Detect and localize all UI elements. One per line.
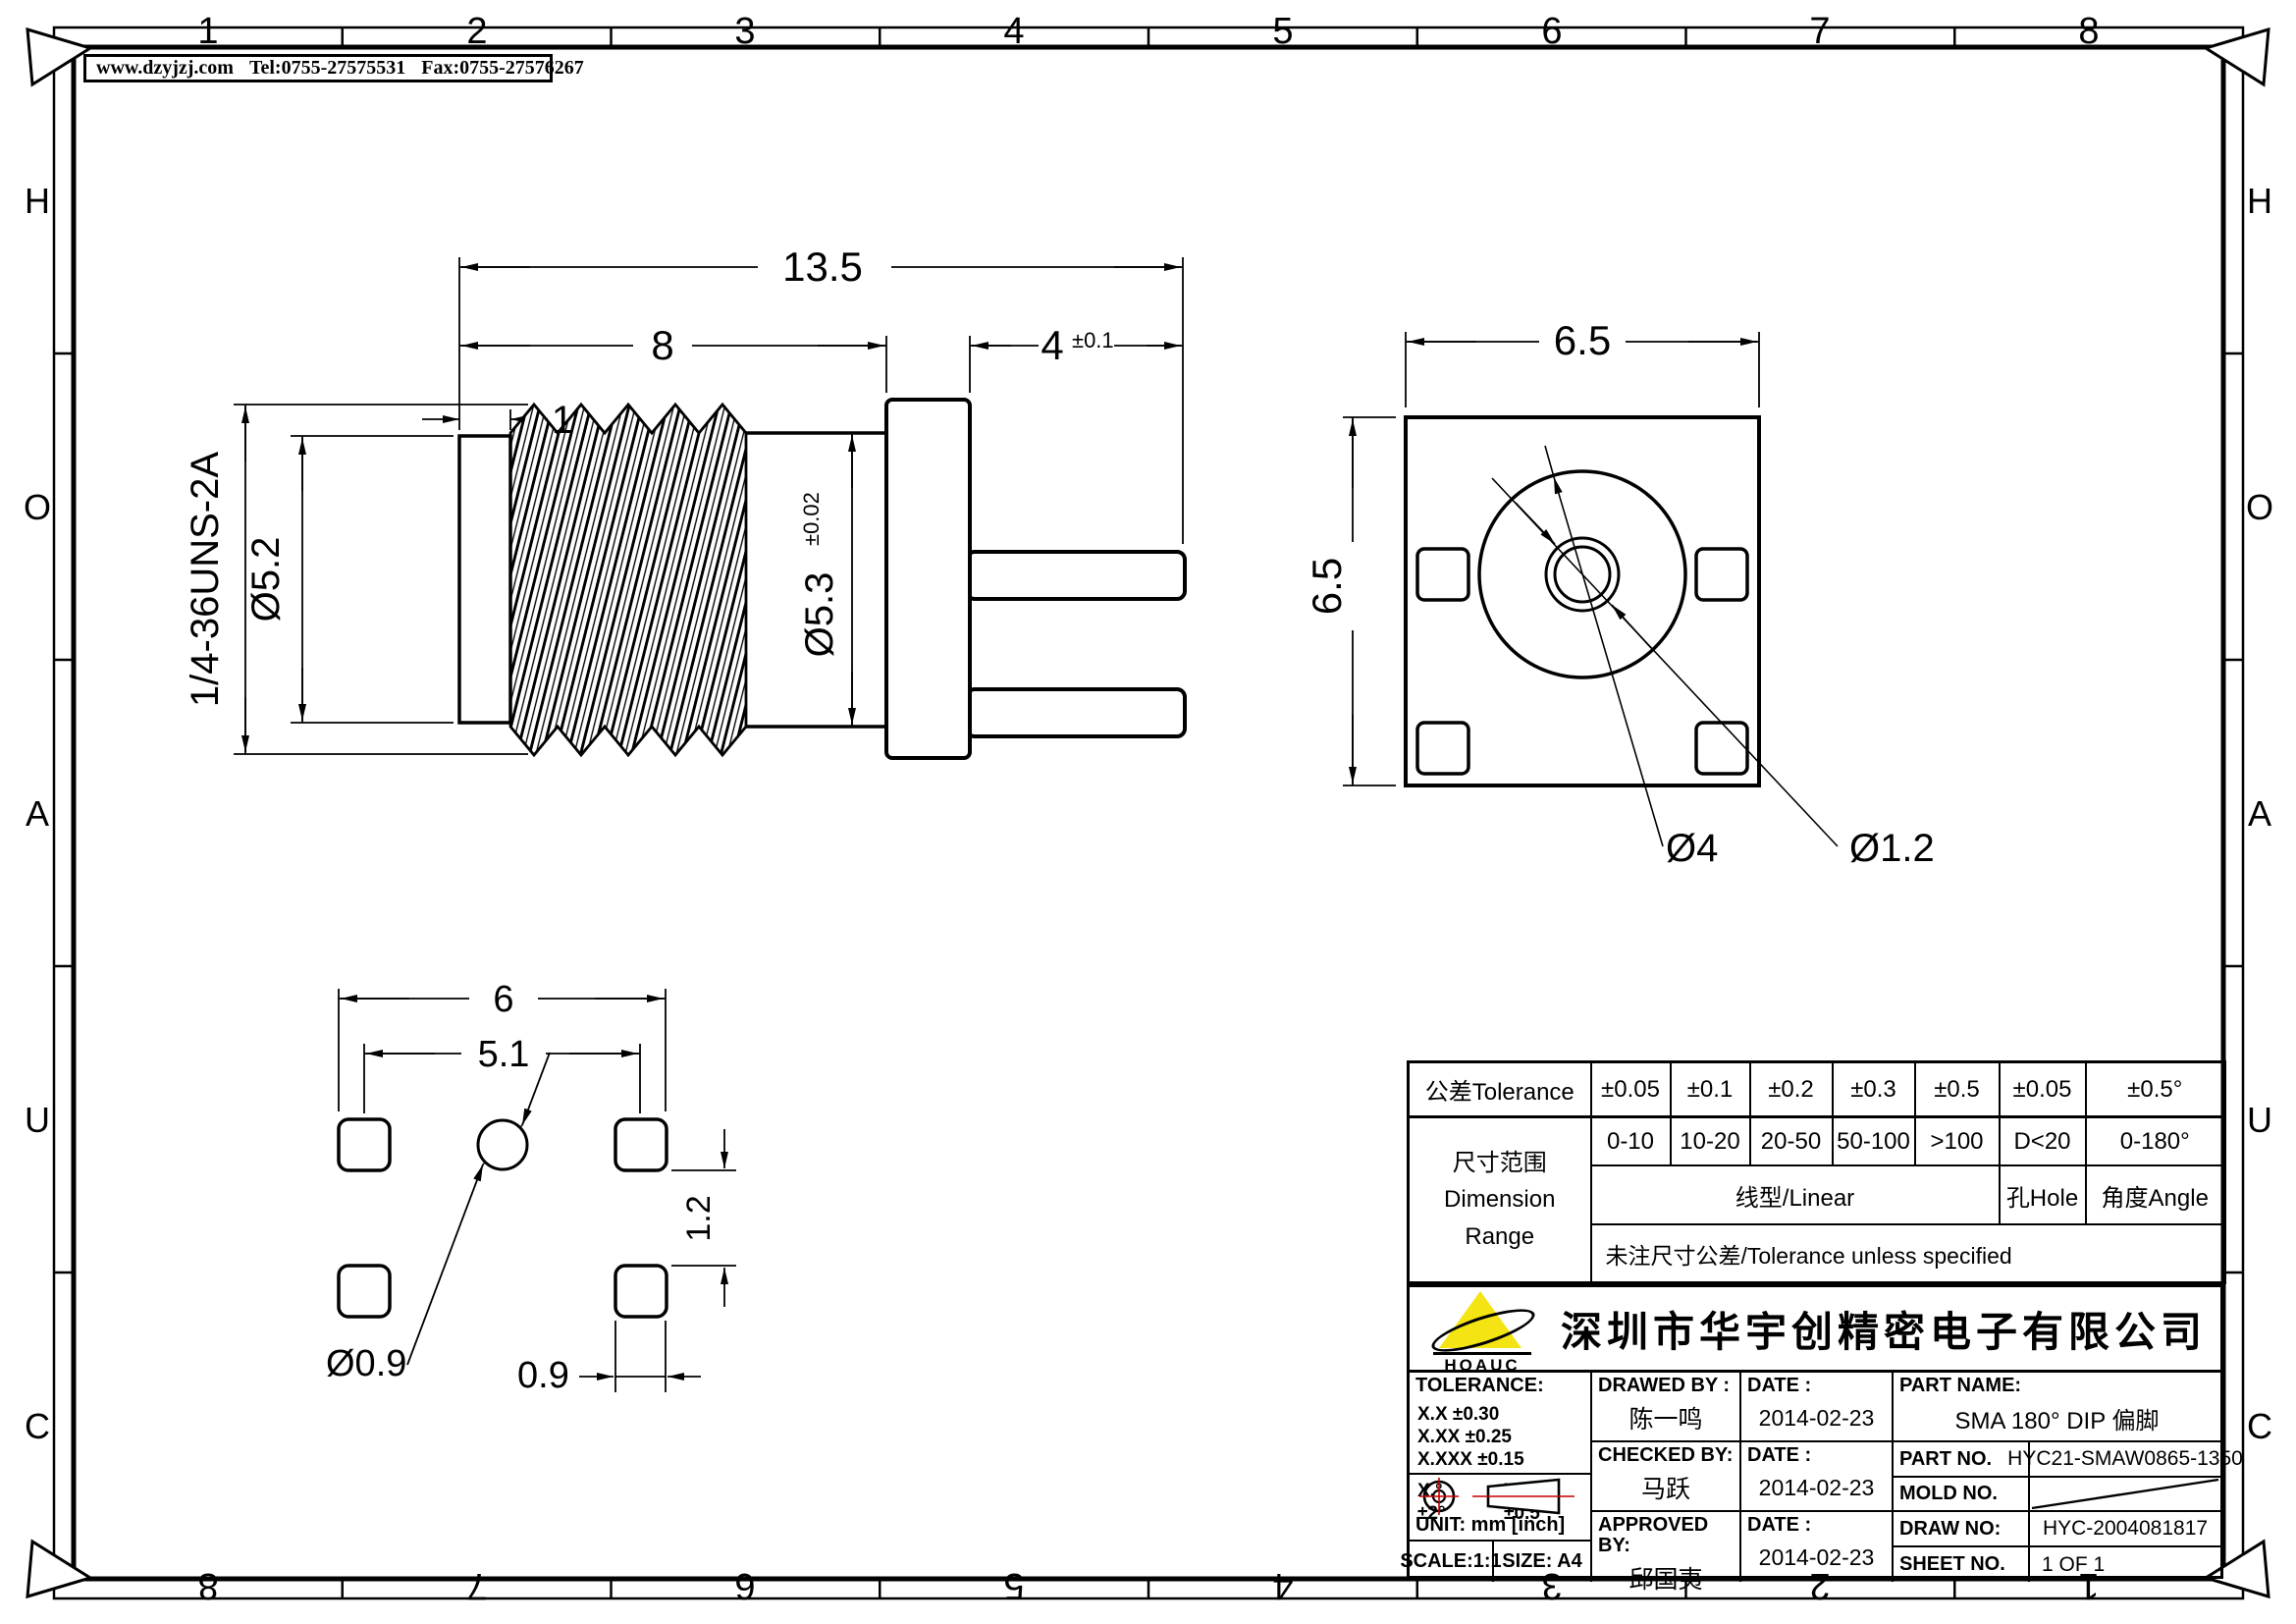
approved-by-label: APPROVED BY:	[1592, 1512, 1739, 1559]
range-value-cell: 20-50	[1750, 1117, 1833, 1166]
tolerance-value-cell: ±0.3	[1833, 1062, 1915, 1117]
range-value-cell: D<20	[2000, 1117, 2086, 1166]
dimension-range-cell: 尺寸范围 Dimension Range	[1409, 1117, 1591, 1283]
date-label: DATE :	[1741, 1373, 1892, 1399]
tolerance-note-block: TOLERANCE: X.X ±0.30 X.XX ±0.25 X.XXX ±0…	[1410, 1373, 1592, 1473]
checked-by-name: 马跃	[1592, 1469, 1739, 1506]
date-label: DATE :	[1741, 1442, 1892, 1469]
tolerance-table: 公差Tolerance ±0.05 ±0.1 ±0.2 ±0.3 ±0.5 ±0…	[1407, 1060, 2223, 1284]
dim-pad-span: 6	[493, 979, 513, 1020]
zone-row-label: A	[26, 793, 49, 834]
zone-row-label: O	[24, 487, 51, 527]
dim-hole-diameter: Ø0.9	[326, 1343, 406, 1384]
range-value-cell: 50-100	[1833, 1117, 1915, 1166]
zone-row-label: O	[2246, 487, 2273, 527]
telephone-text: Tel:0755-27575531	[249, 57, 405, 80]
zone-row-label: C	[25, 1406, 50, 1446]
tolerance-value-cell: ±0.2	[1750, 1062, 1833, 1117]
part-name-label: PART NAME:	[1894, 1373, 2220, 1399]
zone-col-label: 7	[466, 1565, 487, 1606]
dim-pad-pitch: 5.1	[478, 1034, 530, 1075]
pad-bottom-left	[1417, 723, 1468, 774]
side-view: 13.5 8 4 ±0.1 1 1/4-36UNS-2A Ø5.2 Ø5.3 ±…	[184, 244, 1185, 758]
company-row: HOAUC 深圳市华宇创精密电子有限公司	[1410, 1287, 2220, 1373]
zone-col-label: 5	[1003, 1565, 1024, 1606]
dim-pin-diameter: Ø1.2	[1849, 827, 1935, 870]
scale-cell: SCALE:1:1	[1410, 1540, 1494, 1582]
dim-pad-size: 0.9	[517, 1355, 569, 1396]
dim-flange-height: 6.5	[1304, 558, 1350, 615]
zone-col-label: 4	[1272, 1565, 1293, 1606]
blank-diagonal	[2030, 1478, 2220, 1510]
front-view: 6.5 6.5 Ø4 Ø1.2	[1304, 317, 1935, 870]
mount-flange	[886, 400, 970, 758]
zone-col-label: 6	[1541, 11, 1562, 52]
checked-by-cell: CHECKED BY: 马跃	[1592, 1442, 1741, 1512]
tolerance-value-cell: ±0.5°	[2086, 1062, 2225, 1117]
draw-no-value: HYC-2004081817	[2030, 1512, 2220, 1547]
range-value-cell: 10-20	[1671, 1117, 1750, 1166]
fax-text: Fax:0755-27576267	[421, 57, 584, 80]
dim-total-length: 13.5	[782, 244, 863, 290]
projection-symbol	[1412, 1477, 1590, 1516]
pad-bottom-right	[1696, 723, 1747, 774]
zone-col-label: 5	[1272, 11, 1293, 52]
zone-col-label: 2	[466, 11, 487, 52]
checked-by-label: CHECKED BY:	[1592, 1442, 1739, 1469]
date-cell: DATE : 2014-02-23	[1741, 1442, 1894, 1512]
zone-col-label: 1	[197, 11, 218, 52]
tolerance-header-cell: 公差Tolerance	[1409, 1062, 1591, 1117]
dim-thread-spec: 1/4-36UNS-2A	[184, 452, 227, 707]
sheet-no-label: SHEET NO.	[1894, 1547, 2030, 1582]
dim-row-offset: 1.2	[680, 1195, 718, 1241]
zone-col-label: 7	[1809, 11, 1830, 52]
drawed-by-cell: DRAWED BY : 陈一鸣	[1592, 1373, 1741, 1442]
footprint-view: 6 5.1 1.2 Ø0.9 0.9	[326, 979, 736, 1396]
pad-mid-left	[1417, 549, 1468, 600]
dim-flange-circle-diameter: Ø4	[1666, 827, 1718, 870]
dimension-lines	[339, 999, 724, 1377]
logo-underline	[1433, 1352, 1531, 1355]
pad-bottom-right	[615, 1266, 667, 1317]
ground-leg	[967, 689, 1185, 736]
part-no-value: HYC21-SMAW0865-1350	[2030, 1442, 2220, 1478]
zone-col-label: 4	[1003, 11, 1024, 52]
company-name: 深圳市华宇创精密电子有限公司	[1547, 1287, 2220, 1370]
tolerance-line: X.X ±0.30	[1417, 1403, 1582, 1426]
center-hole	[478, 1120, 527, 1169]
date-label: DATE :	[1741, 1512, 1892, 1539]
zone-col-label: 3	[734, 11, 755, 52]
zone-row-label: H	[2247, 181, 2272, 221]
range-label-en1: Dimension	[1410, 1181, 1590, 1218]
dim-thread-length: 8	[651, 322, 673, 368]
angle-label-cell: 角度Angle	[2086, 1165, 2225, 1224]
dim-barrel-tolerance: ±0.02	[799, 492, 824, 546]
size-cell: SIZE: A4	[1494, 1540, 1592, 1582]
thread-section	[510, 405, 746, 755]
part-name-cell: PART NAME: SMA 180° DIP 偏脚	[1894, 1373, 2220, 1442]
pad-top-right	[615, 1119, 667, 1170]
approved-by-cell: APPROVED BY: 邱国夷	[1592, 1512, 1741, 1582]
tolerance-value-cell: ±0.5	[1915, 1062, 2000, 1117]
projection-unit-block: UNIT: mm [inch]	[1410, 1473, 1592, 1540]
range-value-cell: 0-180°	[2086, 1117, 2225, 1166]
zone-row-label: U	[2247, 1100, 2272, 1140]
range-value-cell: 0-10	[1591, 1117, 1671, 1166]
drawing-sheet: 1 2 3 4 5 6 7 8 8 7 6 5 4 3 2 1 H O A U …	[0, 0, 2296, 1624]
drawed-by-label: DRAWED BY :	[1592, 1373, 1739, 1399]
date-cell: DATE : 2014-02-23	[1741, 1373, 1894, 1442]
zone-col-label: 6	[734, 1565, 755, 1606]
tolerance-value-cell: ±0.05	[2000, 1062, 2086, 1117]
tolerance-label: TOLERANCE:	[1410, 1373, 1590, 1399]
date-approved: 2014-02-23	[1741, 1539, 1892, 1576]
mold-no-label: MOLD NO.	[1894, 1478, 2030, 1512]
dim-tail-length: 4	[1041, 322, 1063, 368]
date-drawed: 2014-02-23	[1741, 1399, 1892, 1436]
mold-no-value	[2030, 1478, 2220, 1512]
zone-row-label: U	[25, 1100, 50, 1140]
contact-info-box: www.dzyjzj.com Tel:0755-27575531 Fax:075…	[83, 54, 553, 82]
approved-by-name: 邱国夷	[1592, 1559, 1739, 1597]
range-label-en2: Range	[1410, 1218, 1590, 1255]
tolerance-line: X.XX ±0.25	[1417, 1426, 1582, 1448]
cap-section	[459, 436, 510, 723]
website-text: www.dzyjzj.com	[96, 57, 234, 80]
zone-col-label: 8	[2078, 11, 2099, 52]
dim-flange-width: 6.5	[1554, 317, 1611, 363]
dim-barrel-diameter: Ø5.3	[798, 572, 841, 658]
range-label-cn: 尺寸范围	[1410, 1145, 1590, 1181]
tolerance-value-cell: ±0.05	[1591, 1062, 1671, 1117]
dim-tail-tolerance: ±0.1	[1072, 328, 1114, 352]
zone-row-label: A	[2248, 793, 2271, 834]
linear-label-cell: 线型/Linear	[1591, 1165, 2000, 1224]
draw-no-label: DRAW NO:	[1894, 1512, 2030, 1547]
range-value-cell: >100	[1915, 1117, 2000, 1166]
pad-top-left	[339, 1119, 390, 1170]
unit-label: UNIT: mm [inch]	[1415, 1514, 1565, 1537]
center-pin	[967, 552, 1185, 599]
extension-lines	[339, 989, 736, 1392]
date-cell: DATE : 2014-02-23	[1741, 1512, 1894, 1582]
zone-col-label: 8	[197, 1565, 218, 1606]
part-name-value: SMA 180° DIP 偏脚	[1894, 1399, 2220, 1436]
dim-cap-length: 1	[552, 399, 573, 442]
zone-row-label: H	[25, 181, 50, 221]
tolerance-note-cell: 未注尺寸公差/Tolerance unless specified	[1591, 1224, 2225, 1282]
drawed-by-name: 陈一鸣	[1592, 1399, 1739, 1436]
dim-cap-diameter: Ø5.2	[244, 537, 288, 623]
pad-mid-right	[1696, 549, 1747, 600]
date-checked: 2014-02-23	[1741, 1469, 1892, 1506]
pad-bottom-left	[339, 1266, 390, 1317]
tolerance-value-cell: ±0.1	[1671, 1062, 1750, 1117]
company-logo: HOAUC	[1421, 1291, 1539, 1370]
zone-row-label: C	[2247, 1406, 2272, 1446]
tolerance-line: X.XXX ±0.15	[1417, 1448, 1582, 1471]
title-block: HOAUC 深圳市华宇创精密电子有限公司 TOLERANCE: X.X ±0.3…	[1407, 1284, 2223, 1579]
sheet-no-value: 1 OF 1	[2030, 1547, 2220, 1582]
hole-label-cell: 孔Hole	[2000, 1165, 2086, 1224]
